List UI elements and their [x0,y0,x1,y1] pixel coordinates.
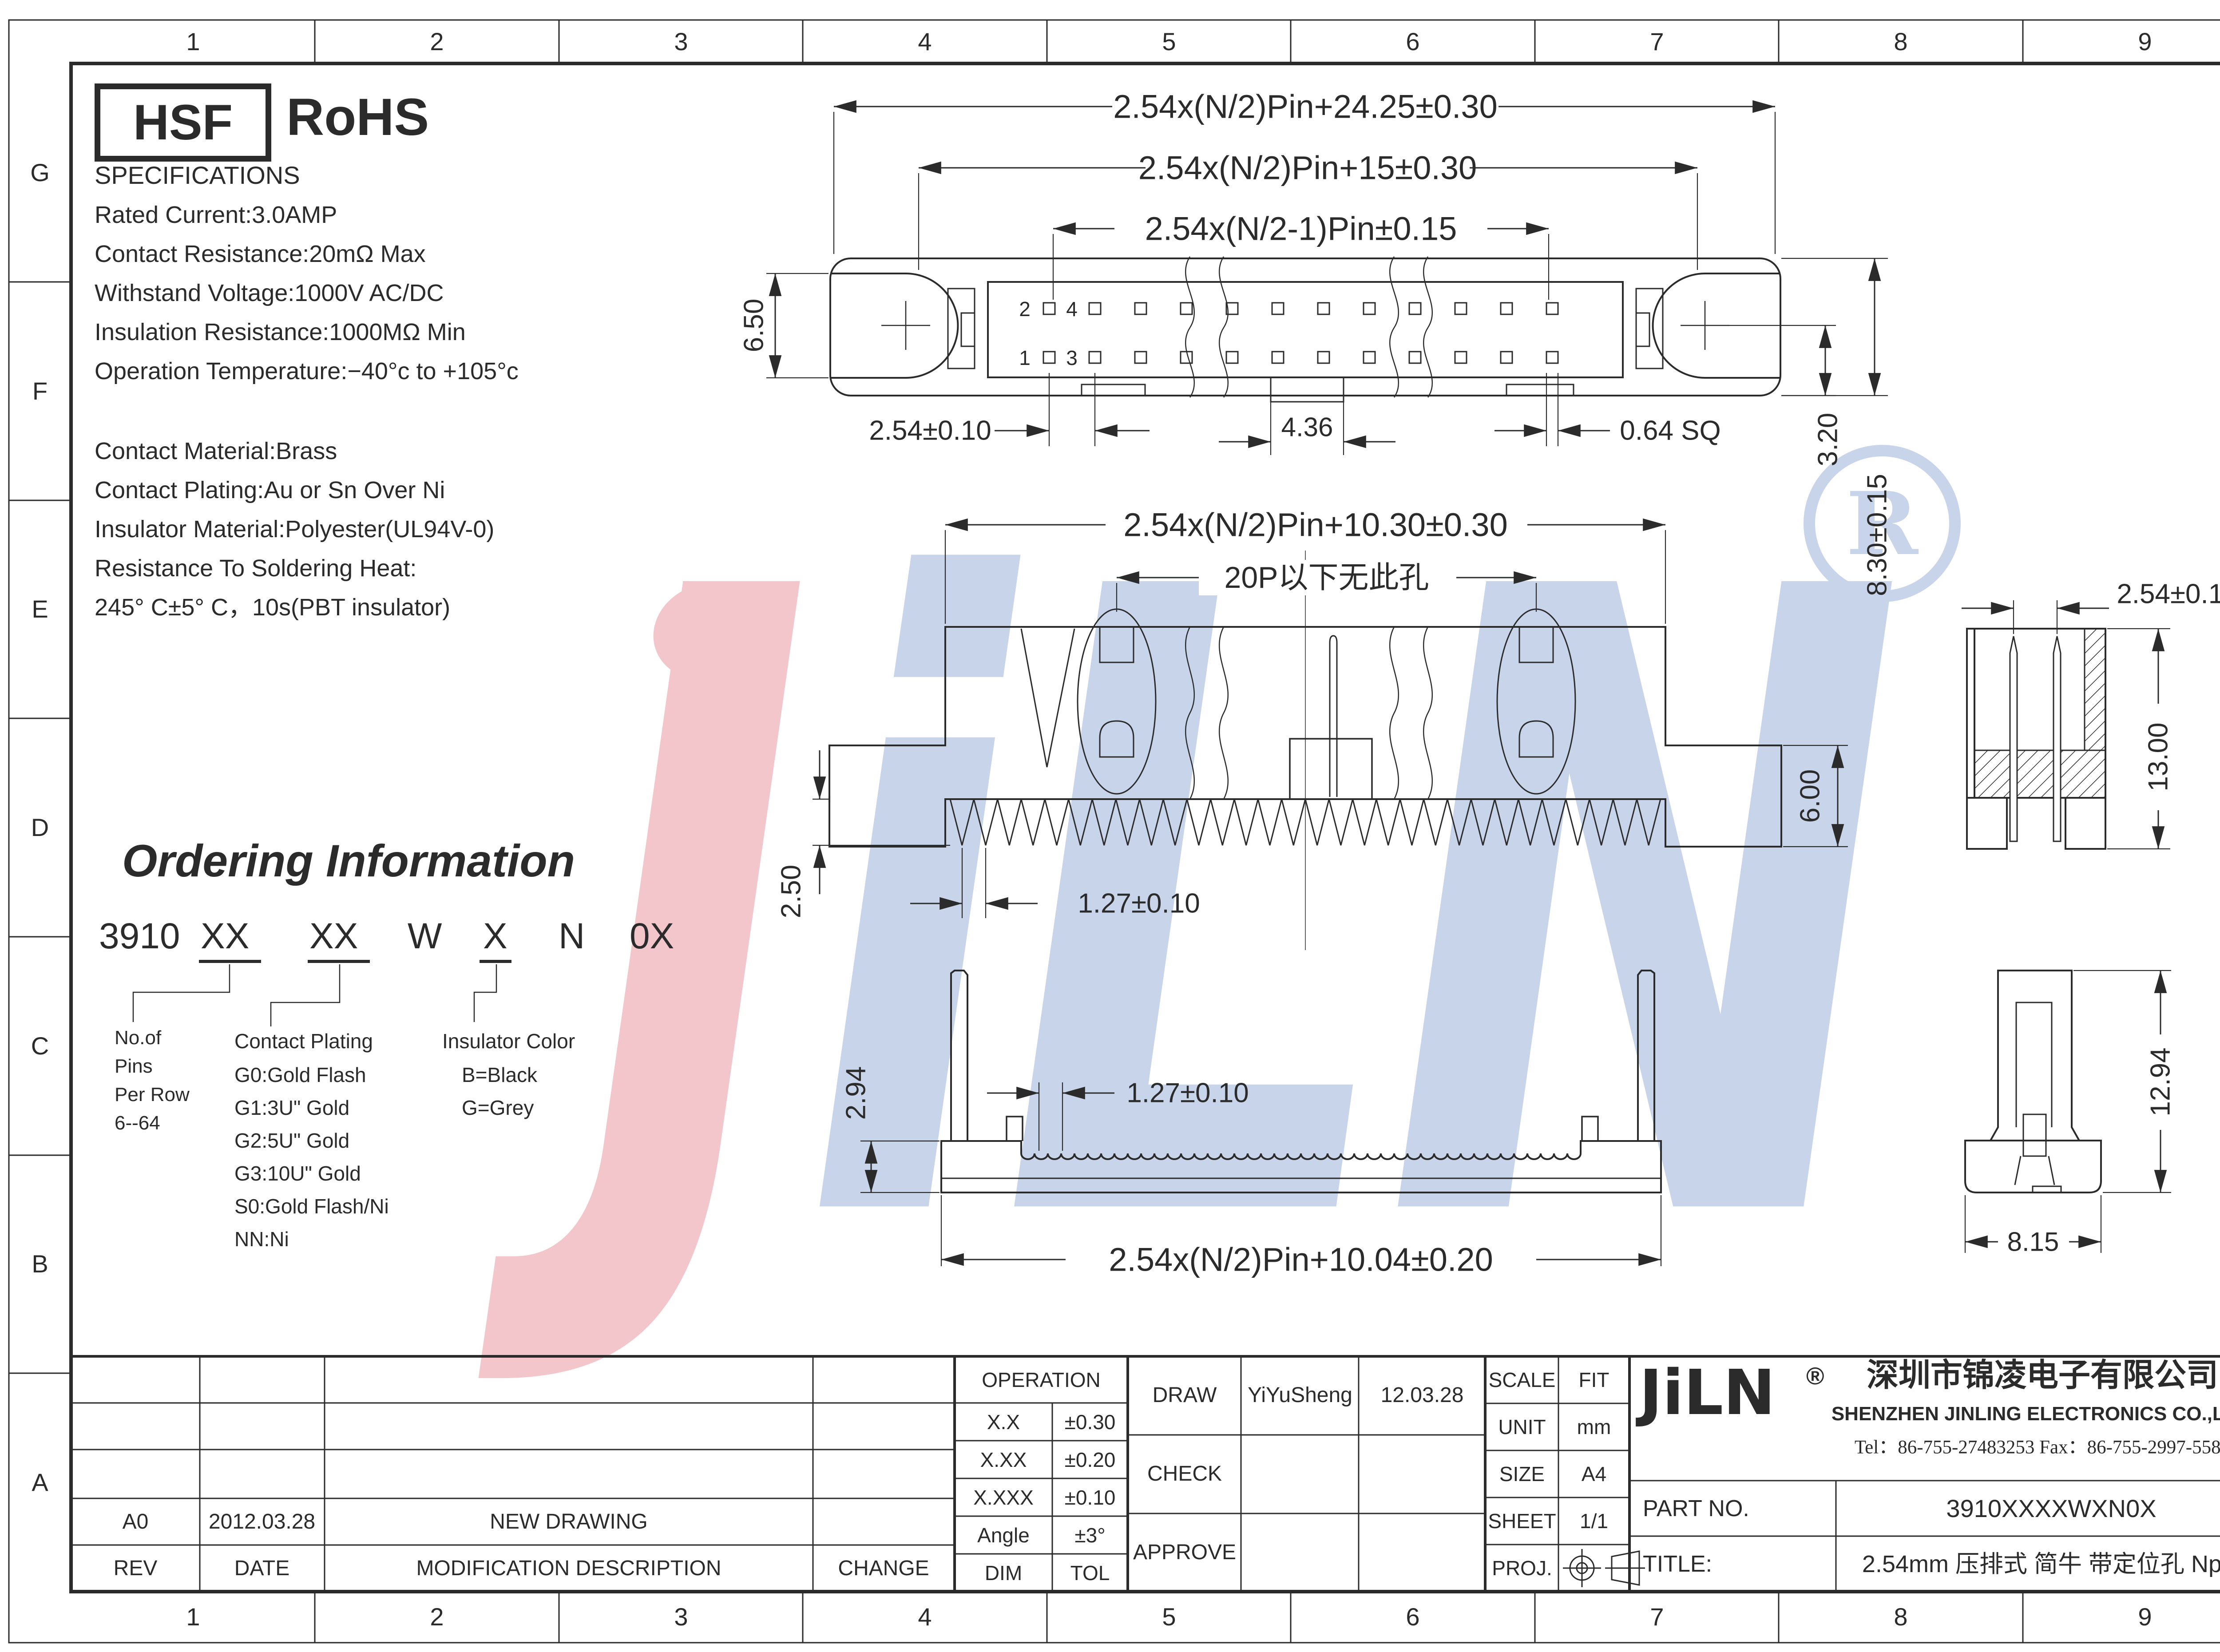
dim-body-height: 8.30±0.15 [1862,474,1893,596]
scale-label: SCALE [1489,1370,1556,1390]
operation-label: OPERATION [982,1370,1101,1390]
tol-xxx-label: X.XX [980,1450,1027,1470]
end-view-dimensions [1965,971,2171,1253]
spec-operation-temperature: Operation Temperature:−40°c to +105°c [95,359,519,383]
rohs-label: RoHS [286,91,429,143]
proj-label: PROJ. [1492,1558,1552,1578]
dim-slot-height: 6.50 [739,299,769,353]
ordering-leader-lines [133,964,496,1026]
plating-s0: S0:Gold Flash/Ni [234,1196,389,1216]
rev-date: 2012.03.28 [209,1511,315,1533]
section-view [1967,629,2105,849]
dim-pin-pitch-side: 1.27±0.10 [1078,888,1200,919]
modification-header: MODIFICATION DESCRIPTION [416,1558,721,1579]
dim-pinsq-top: 0.64 SQ [1620,416,1720,446]
grid-row-g: G [30,160,50,185]
end-view-dimension-labels: 12.94 8.15 [1998,1034,2176,1257]
code-series: 3910 [99,918,180,955]
company-name-en: SHENZHEN JINLING ELECTRONICS CO.,LTD [1831,1404,2220,1424]
plating-nn: NN:Ni [234,1229,289,1249]
grid-col-3: 3 [674,29,688,54]
title-value: 2.54mm 压排式 简牛 带定位孔 Npin [1862,1552,2220,1576]
grid-row-a: A [32,1470,48,1495]
top-view [830,257,1780,402]
pin-label-3: 3 [1066,346,1078,369]
plating-title: Contact Plating [234,1031,373,1051]
spec-contact-resistance: Contact Resistance:20mΩ Max [95,242,426,266]
draw-date: 12.03.28 [1381,1385,1464,1406]
dim-overall-side: 2.54x(N/2)Pin+10.30±0.30 [1123,507,1507,543]
dim-ear-height: 6.00 [1795,769,1826,823]
date-header: DATE [234,1558,289,1579]
pins-label-2: Pins [115,1057,153,1076]
logo-registered-icon: ® [1806,1364,1824,1388]
dim-notch-top: 4.36 [1281,412,1333,442]
company-tel-fax: Tel：86-755-27483253 Fax：86-755-2997-5588 [1855,1438,2220,1457]
color-title: Insulator Color [442,1031,575,1051]
side-view [829,551,1781,950]
code-n: N [559,918,585,955]
underline-color [480,960,511,963]
code-pins: XX [201,918,249,955]
pin-label-2: 2 [1019,297,1031,321]
bottom-view-dimensions [860,1082,1661,1266]
grid-col-9: 9 [2138,29,2152,54]
underline-plating [308,960,370,963]
plating-g3: G3:10U" Gold [234,1163,361,1184]
dim-hole-note: 20P以下无此孔 [1225,561,1429,594]
grid-row-b: B [32,1252,48,1276]
tol-angle-label: Angle [977,1525,1030,1545]
grid-row-c: C [31,1034,49,1058]
sheet-label: SHEET [1488,1511,1556,1531]
change-header: CHANGE [838,1558,929,1579]
rev-description: NEW DRAWING [490,1511,648,1533]
projection-symbol-icon [1563,1549,1645,1587]
dim-pitch-bottom: 1.27±0.10 [1126,1078,1249,1109]
side-view-dimension-labels: 2.54x(N/2)Pin+10.30±0.30 20P以下无此孔 2.50 1… [776,507,1826,919]
grid-col-3b: 3 [674,1604,688,1629]
pin-label-1: 1 [1019,346,1031,369]
check-label: CHECK [1147,1463,1222,1485]
center-cross-icon [881,301,1729,350]
approve-label: APPROVE [1133,1542,1236,1563]
size-value: A4 [1582,1464,1606,1484]
part-no-label: PART NO. [1643,1497,1749,1520]
dim-pitch-top: 2.54±0.10 [869,416,991,446]
tol-xx-value: ±0.30 [1065,1412,1116,1432]
dim-pitch-section: 2.54±0.10 [2117,579,2220,610]
hsf-badge: HSF [95,83,271,162]
grid-col-1: 1 [186,29,200,54]
spec-contact-material: Contact Material:Brass [95,439,337,463]
dim-offset: 3.20 [1813,413,1843,467]
grid-col-2b: 2 [430,1604,444,1629]
grid-col-2: 2 [430,29,444,54]
part-no-value: 3910XXXXWXN0X [1946,1496,2156,1521]
sheet-value: 1/1 [1580,1511,1608,1531]
unit-label: UNIT [1498,1417,1546,1437]
section-view-dimension-labels: 2.54±0.10 13.00 [2117,579,2220,811]
spec-contact-plating: Contact Plating:Au or Sn Over Ni [95,478,445,502]
dim-flange-top: 2.54x(N/2)Pin+15±0.30 [1138,150,1477,186]
size-label: SIZE [1499,1464,1545,1484]
break-lines [1185,627,1432,799]
bottom-view [941,971,1661,1192]
scale-value: FIT [1579,1370,1609,1390]
plating-g0: G0:Gold Flash [234,1065,366,1085]
grid-col-7b: 7 [1650,1604,1664,1629]
spec-withstand-voltage: Withstand Voltage:1000V AC/DC [95,281,444,305]
pins-label-4: 6--64 [115,1113,160,1133]
spec-soldering-temp: 245° C±5° C，10s(PBT insulator) [95,595,450,619]
company-logo: JiLN [1639,1362,1775,1424]
color-black: B=Black [462,1065,537,1085]
underline-pins [199,960,261,963]
engineering-drawing-sheet: { "grid": {"cols":["1","2","3","4","5","… [0,0,2220,1652]
tol-xxxx-label: X.XXX [973,1487,1034,1508]
dim-overall-top: 2.54x(N/2)Pin+24.25±0.30 [1113,88,1497,125]
grid-col-6: 6 [1406,29,1419,54]
code-color: X [483,918,507,955]
dim-height-section: 13.00 [2143,722,2174,791]
grid-col-5: 5 [1162,29,1176,54]
company-name-cn: 深圳市锦凌电子有限公司 [1867,1359,2218,1391]
dim-base-height: 2.94 [841,1066,872,1120]
grid-col-8: 8 [1894,29,1907,54]
pins-label-1: No.of [115,1028,161,1048]
code-plating: XX [309,918,358,955]
specs-title: SPECIFICATIONS [95,163,300,188]
pin-label-4: 4 [1066,297,1078,321]
grid-col-5b: 5 [1162,1604,1176,1629]
grid-row-f: F [32,379,48,404]
grid-row-e: E [32,597,48,622]
dim-overall-bottom: 2.54x(N/2)Pin+10.04±0.20 [1109,1241,1493,1278]
spec-rated-current: Rated Current:3.0AMP [95,203,337,227]
pin-field [1043,303,1558,363]
grid-col-6b: 6 [1406,1604,1419,1629]
tol-xx-label: X.X [987,1412,1020,1432]
tol-angle-value: ±3° [1074,1525,1105,1545]
tol-col-label: TOL [1070,1563,1110,1583]
ordering-title: Ordering Information [122,838,575,883]
dim-pin-length: 2.50 [776,865,807,919]
grid-row-d: D [31,815,49,840]
title-label: TITLE: [1643,1553,1712,1576]
grid-col-7: 7 [1650,29,1664,54]
code-w: W [408,918,442,955]
bottom-view-dimension-labels: 2.94 1.27±0.10 2.54x(N/2)Pin+10.04±0.20 [841,1066,1537,1278]
color-grey: G=Grey [462,1097,534,1118]
plating-g2: G2:5U" Gold [234,1130,349,1151]
end-view [1965,971,2101,1192]
plating-g1: G1:3U" Gold [234,1097,349,1118]
spec-insulation-resistance: Insulation Resistance:1000MΩ Min [95,320,466,344]
break-lines [1185,257,1432,397]
grid-col-1b: 1 [186,1604,200,1629]
rev-value: A0 [123,1511,149,1533]
grid-col-4b: 4 [918,1604,932,1629]
grid-col-8b: 8 [1894,1604,1907,1629]
rev-header: REV [114,1558,158,1579]
draw-label: DRAW [1153,1385,1217,1406]
unit-value: mm [1577,1417,1611,1437]
dim-width-end: 8.15 [2007,1227,2059,1257]
pins-label-3: Per Row [115,1085,190,1105]
grid-col-4: 4 [918,29,932,54]
tol-xxxx-value: ±0.10 [1065,1487,1116,1508]
grid-col-9b: 9 [2138,1604,2152,1629]
tol-xxx-value: ±0.20 [1065,1450,1116,1470]
spec-soldering-heat: Resistance To Soldering Heat: [95,556,416,580]
dim-col-label: DIM [985,1563,1022,1583]
dim-pinspan-top: 2.54x(N/2-1)Pin±0.15 [1145,210,1457,247]
drawer-name: YiYuSheng [1248,1385,1352,1406]
spec-insulator-material: Insulator Material:Polyester(UL94V-0) [95,517,494,541]
code-0x: 0X [630,918,674,955]
dim-height-end: 12.94 [2145,1047,2176,1116]
